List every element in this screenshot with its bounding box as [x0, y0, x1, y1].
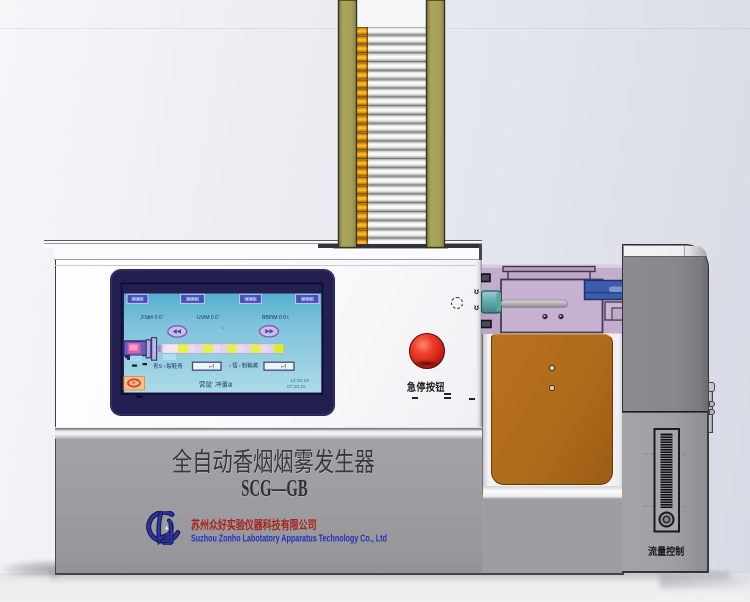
svg-text:14:10:18: 14:10:18: [290, 378, 309, 384]
svg-text:,FStt# 0 0 ': ,FStt# 0 0 ': [140, 315, 164, 321]
svg-text:BBPtM 0 0 t: BBPtM 0 0 t: [262, 315, 289, 321]
svg-text:⌐l: ⌐l: [281, 365, 286, 371]
svg-text:⌐l: ⌐l: [209, 365, 214, 371]
svg-text:♀悟♀制聯黃: ♀悟♀制聯黃: [228, 362, 259, 370]
svg-text:07:16:15: 07:16:15: [287, 384, 306, 390]
svg-text:宮鼠' 冲蛋മ: 宮鼠' 冲蛋മ: [199, 380, 233, 389]
svg-text:青S♀裂鞋青: 青S♀裂鞋青: [153, 362, 183, 370]
svg-text:UVtM 0 0 ': UVtM 0 0 ': [197, 315, 220, 321]
